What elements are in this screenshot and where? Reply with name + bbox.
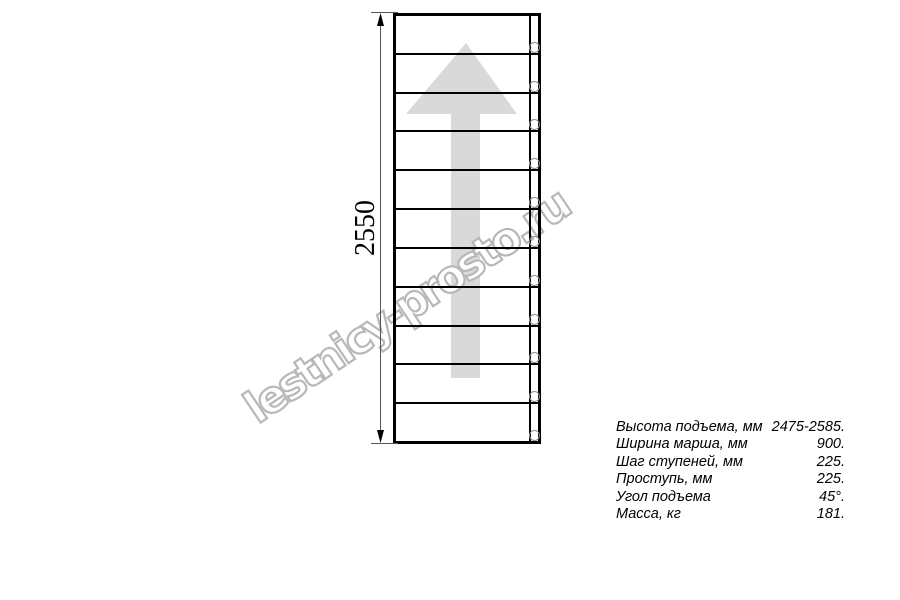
bolt-hole-circle-icon [529, 275, 540, 286]
bolt-hole-circle-icon [529, 314, 540, 325]
spec-value: 2475-2585. [772, 419, 845, 436]
bolt-hole-circle-icon [529, 352, 540, 363]
stair-tread [396, 327, 538, 366]
spec-value: 181. [817, 506, 845, 523]
dimension-extension-line-bottom [371, 443, 398, 444]
dimension-arrowhead-up-icon [377, 13, 384, 26]
spec-table: Высота подъема, мм2475-2585.Ширина марша… [616, 419, 845, 523]
spec-row: Угол подъема45°. [616, 489, 845, 506]
dimension-arrowhead-down-icon [377, 430, 384, 443]
bolt-hole-circle-icon [529, 81, 540, 92]
bolt-hole-circle-icon [529, 119, 540, 130]
spec-label: Масса, кг [616, 506, 681, 523]
stair-tread [396, 132, 538, 171]
spec-row: Масса, кг181. [616, 506, 845, 523]
dimension-label: 2550 [351, 168, 381, 288]
spec-row: Высота подъема, мм2475-2585. [616, 419, 845, 436]
stair-tread [396, 404, 538, 441]
bolt-hole-circle-icon [529, 430, 540, 441]
spec-value: 225. [817, 454, 845, 471]
staircase-plan [393, 13, 541, 444]
bolt-hole-circle-icon [529, 236, 540, 247]
spec-label: Высота подъема, мм [616, 419, 763, 436]
bolt-hole-circle-icon [529, 391, 540, 402]
spec-label: Шаг ступеней, мм [616, 454, 743, 471]
stair-tread [396, 94, 538, 133]
spec-value: 225. [817, 471, 845, 488]
spec-label: Угол подъема [616, 489, 711, 506]
stair-tread [396, 249, 538, 288]
dimension-extension-line-top [371, 12, 398, 13]
spec-value: 900. [817, 436, 845, 453]
spec-label: Ширина марша, мм [616, 436, 748, 453]
spec-row: Проступь, мм225. [616, 471, 845, 488]
stair-tread [396, 365, 538, 404]
stair-tread [396, 210, 538, 249]
stair-tread [396, 288, 538, 327]
stair-tread [396, 171, 538, 210]
bolt-hole-circle-icon [529, 158, 540, 169]
spec-row: Шаг ступеней, мм225. [616, 454, 845, 471]
stair-tread [396, 55, 538, 94]
spec-value: 45°. [819, 489, 845, 506]
stair-tread [396, 16, 538, 55]
staircase-drawing-canvas: lestnicy-prosto.ru 2550 Высота подъема, … [0, 0, 900, 600]
bolt-hole-circle-icon [529, 197, 540, 208]
bolt-hole-circle-icon [529, 42, 540, 53]
spec-label: Проступь, мм [616, 471, 712, 488]
spec-row: Ширина марша, мм900. [616, 436, 845, 453]
